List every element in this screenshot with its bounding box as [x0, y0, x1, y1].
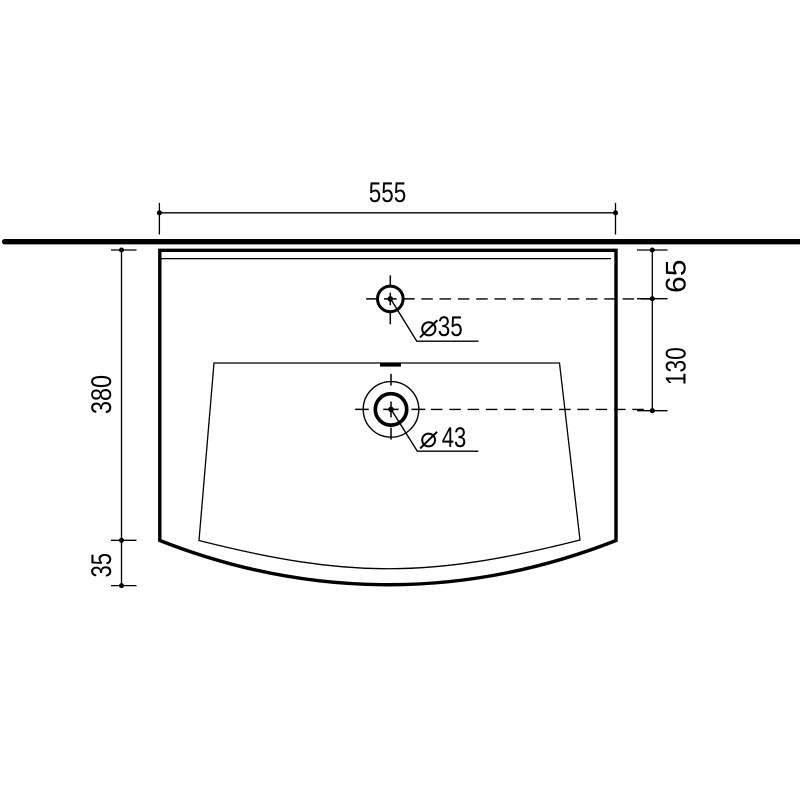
svg-text:43: 43 — [442, 422, 467, 454]
svg-text:380: 380 — [86, 375, 118, 414]
svg-text:35: 35 — [86, 553, 118, 578]
svg-text:35: 35 — [438, 311, 463, 343]
svg-text:555: 555 — [369, 177, 407, 209]
svg-text:130: 130 — [661, 347, 693, 385]
svg-text:65: 65 — [661, 260, 693, 294]
